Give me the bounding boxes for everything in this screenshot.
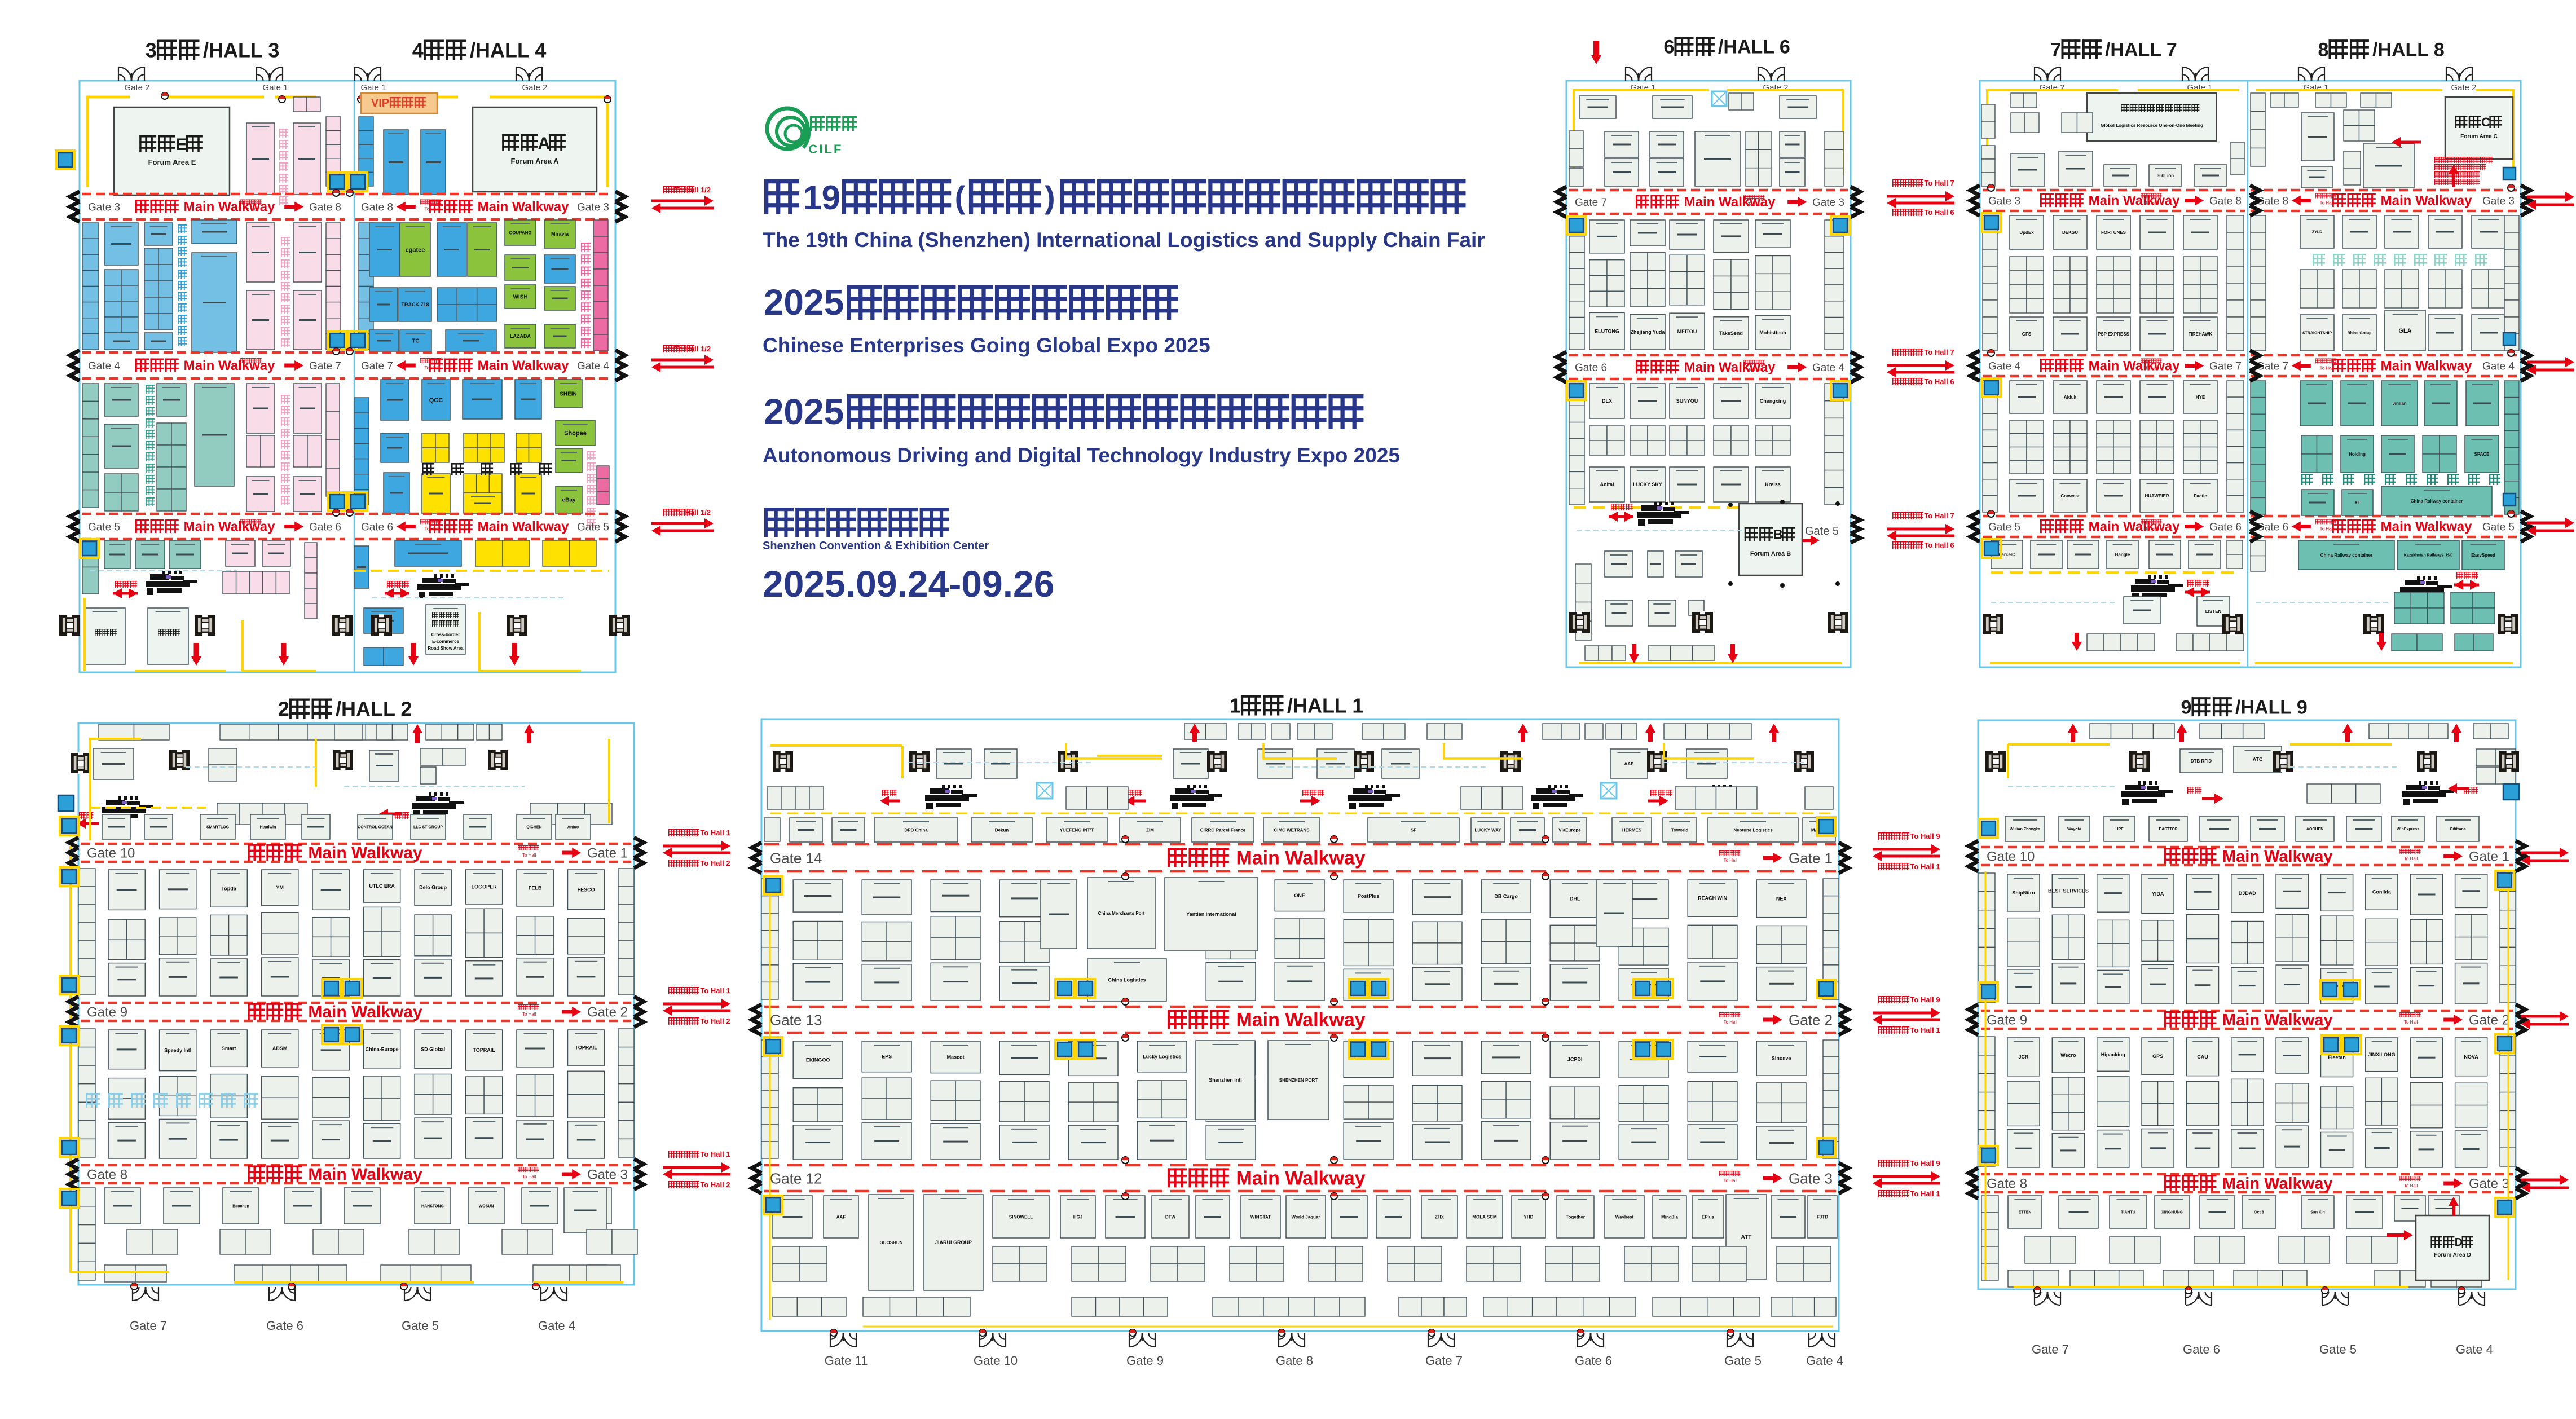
- svg-text:YHD: YHD: [1524, 1214, 1534, 1219]
- svg-text:Gate 6: Gate 6: [1575, 1354, 1612, 1368]
- svg-text:Antuo: Antuo: [567, 826, 579, 830]
- svg-text:To Hall 1: To Hall 1: [1910, 862, 1940, 871]
- svg-text:Gate 5: Gate 5: [2482, 521, 2515, 533]
- svg-text:Gate 8: Gate 8: [1987, 1176, 2027, 1192]
- svg-text:Gate 7: Gate 7: [309, 360, 341, 372]
- svg-text:WINGTAT: WINGTAT: [1250, 1214, 1271, 1219]
- svg-text:China Logistics: China Logistics: [1108, 977, 1146, 983]
- svg-text:To Hall: To Hall: [522, 853, 536, 858]
- svg-text:Gate 4: Gate 4: [2482, 360, 2515, 372]
- svg-text:QICHEN: QICHEN: [526, 826, 541, 830]
- svg-text:To Hall: To Hall: [245, 527, 259, 532]
- svg-text:Speedy Intl: Speedy Intl: [164, 1048, 191, 1054]
- svg-text:To Hall: To Hall: [425, 365, 439, 371]
- svg-text:EasySpeed: EasySpeed: [2471, 553, 2495, 558]
- svg-text:DB Cargo: DB Cargo: [1494, 893, 1518, 899]
- svg-text:Zhejiang Yuda: Zhejiang Yuda: [1631, 329, 1666, 335]
- svg-text:DJDAD: DJDAD: [2239, 891, 2257, 896]
- svg-text:Gate 6: Gate 6: [1575, 362, 1607, 374]
- svg-text:Gate 7: Gate 7: [2032, 1342, 2069, 1356]
- svg-text:Gate 5: Gate 5: [577, 521, 609, 533]
- svg-text:Gate 8: Gate 8: [2209, 195, 2242, 207]
- svg-text:Delo Group: Delo Group: [419, 885, 447, 891]
- svg-text:To Hall: To Hall: [2145, 366, 2159, 371]
- svg-text:Gate 8: Gate 8: [1276, 1354, 1313, 1368]
- svg-text:SD Global: SD Global: [421, 1047, 445, 1052]
- svg-text:LUCKY SKY: LUCKY SKY: [1633, 482, 1662, 487]
- svg-text:Forum Area E: Forum Area E: [148, 158, 196, 166]
- svg-text:Gate 5: Gate 5: [402, 1319, 439, 1333]
- svg-text:China-Europe: China-Europe: [366, 1047, 399, 1052]
- svg-text:/HALL 3: /HALL 3: [203, 38, 279, 61]
- svg-text:MEITOU: MEITOU: [1677, 329, 1697, 334]
- svg-text:Main Walkway: Main Walkway: [184, 358, 275, 373]
- svg-text:HUAWEIER: HUAWEIER: [2145, 493, 2169, 499]
- svg-text:A: A: [538, 134, 551, 153]
- svg-text:To Hall 1: To Hall 1: [700, 986, 730, 995]
- svg-text:AOCHEN: AOCHEN: [2306, 827, 2323, 831]
- svg-text:Oct 8: Oct 8: [2254, 1210, 2264, 1214]
- svg-text:NEX: NEX: [1776, 896, 1787, 902]
- svg-text:To Hall: To Hall: [2320, 527, 2334, 532]
- svg-text:Shenzhen Intl: Shenzhen Intl: [1209, 1077, 1242, 1083]
- svg-text:Gate 4: Gate 4: [577, 360, 609, 372]
- svg-text:Gate 3: Gate 3: [2482, 195, 2515, 207]
- svg-text:ShipNitro: ShipNitro: [2012, 890, 2035, 896]
- svg-text:DHL: DHL: [1570, 896, 1580, 902]
- svg-text:FESCO: FESCO: [578, 887, 595, 892]
- svg-text:LUCKY WAY: LUCKY WAY: [1474, 827, 1501, 832]
- svg-text:ETTEN: ETTEN: [2019, 1210, 2032, 1214]
- svg-text:ZIM: ZIM: [1146, 827, 1154, 832]
- svg-text:Conlida: Conlida: [2372, 889, 2392, 895]
- svg-text:To Hall 1/2: To Hall 1/2: [675, 186, 711, 194]
- svg-text:To Hall 6: To Hall 6: [1924, 541, 1954, 549]
- svg-text:Main Walkway: Main Walkway: [308, 844, 422, 862]
- svg-text:DTW: DTW: [1165, 1214, 1176, 1219]
- svg-text:Main Walkway: Main Walkway: [184, 519, 275, 535]
- svg-text:XINGHUNG: XINGHUNG: [2161, 1210, 2183, 1214]
- svg-text:To Hall: To Hall: [2145, 201, 2159, 206]
- svg-text:QCC: QCC: [429, 397, 443, 404]
- svg-text:San Xin: San Xin: [2310, 1210, 2325, 1214]
- svg-text:Wulian Zhongka: Wulian Zhongka: [2010, 827, 2040, 831]
- svg-text:To Hall: To Hall: [1724, 1178, 1738, 1183]
- svg-text:Topda: Topda: [221, 885, 236, 891]
- svg-text:Main Walkway: Main Walkway: [1236, 848, 1365, 869]
- svg-text:Baochen: Baochen: [232, 1204, 249, 1208]
- svg-text:MOLA SCM: MOLA SCM: [1472, 1214, 1497, 1219]
- svg-text:Gate 7: Gate 7: [130, 1319, 167, 1333]
- svg-text:To Hall 9: To Hall 9: [1910, 995, 1940, 1004]
- svg-text:Main Walkway: Main Walkway: [478, 358, 569, 373]
- svg-text:China Railway container: China Railway container: [2411, 499, 2463, 504]
- svg-text:XT: XT: [2354, 500, 2360, 505]
- svg-text:Main Walkway: Main Walkway: [2089, 519, 2180, 535]
- svg-text:To Hall: To Hall: [1724, 1020, 1738, 1025]
- svg-text:JCR: JCR: [2018, 1054, 2029, 1060]
- svg-text:Hangle: Hangle: [2115, 552, 2130, 557]
- svg-text:E-commerce: E-commerce: [432, 639, 460, 644]
- svg-text:SUNYOU: SUNYOU: [1676, 398, 1698, 404]
- svg-text:Wayota: Wayota: [2067, 827, 2081, 831]
- svg-text:Shenzhen Convention & Exhibiti: Shenzhen Convention & Exhibition Center: [763, 540, 989, 552]
- svg-text:Gate 2: Gate 2: [587, 1005, 628, 1020]
- svg-text:JCPDl: JCPDl: [1567, 1057, 1583, 1063]
- svg-text:Gate 2: Gate 2: [1789, 1011, 1833, 1028]
- svg-text:Gate 11: Gate 11: [825, 1354, 868, 1368]
- svg-text:TakeSend: TakeSend: [1719, 330, 1743, 336]
- svg-text:Gate 1: Gate 1: [2469, 849, 2509, 865]
- svg-text:Gate 4: Gate 4: [2456, 1342, 2493, 1356]
- svg-text:ViaEurope: ViaEurope: [1558, 827, 1581, 832]
- svg-text:To Hall 1: To Hall 1: [1910, 1189, 1940, 1198]
- svg-text:FORTUNES: FORTUNES: [2101, 230, 2126, 235]
- svg-text:Gate 9: Gate 9: [1126, 1354, 1164, 1368]
- svg-text:Gate 8: Gate 8: [309, 201, 341, 213]
- svg-text:/HALL 8: /HALL 8: [2372, 39, 2445, 60]
- svg-text:Forum Area C: Forum Area C: [2460, 134, 2498, 140]
- svg-text:Dekun: Dekun: [995, 827, 1009, 832]
- svg-text:To Hall: To Hall: [2320, 366, 2334, 371]
- svg-text:6: 6: [1664, 36, 1675, 58]
- svg-text:/HALL 4: /HALL 4: [470, 38, 546, 61]
- svg-text:To Hall 1: To Hall 1: [700, 1150, 730, 1158]
- svg-text:To Hall: To Hall: [522, 1174, 536, 1179]
- svg-text:TOPRAIL: TOPRAIL: [575, 1045, 597, 1051]
- svg-text:Autonomous Driving and Digital: Autonomous Driving and Digital Technolog…: [763, 444, 1400, 467]
- svg-text:/HALL 7: /HALL 7: [2105, 39, 2177, 60]
- svg-text:Main Walkway: Main Walkway: [2222, 1011, 2333, 1029]
- svg-text:To Hall 7: To Hall 7: [1924, 348, 1954, 356]
- svg-text:Conwest: Conwest: [2060, 493, 2080, 499]
- svg-text:Waybest: Waybest: [1615, 1214, 1634, 1219]
- svg-text:Main Walkway: Main Walkway: [2381, 359, 2472, 374]
- svg-text:YM: YM: [276, 885, 284, 891]
- svg-text:SHENZHEN PORT: SHENZHEN PORT: [1279, 1078, 1318, 1083]
- svg-text:JIARUI GROUP: JIARUI GROUP: [935, 1240, 972, 1245]
- svg-text:Gate 8: Gate 8: [87, 1167, 127, 1183]
- svg-text:COUPANG: COUPANG: [509, 230, 531, 235]
- svg-text:Gate 1: Gate 1: [360, 83, 386, 92]
- svg-text:SMARTLOG: SMARTLOG: [206, 826, 230, 830]
- svg-text:To Hall: To Hall: [2145, 527, 2159, 532]
- svg-text:Fleetan: Fleetan: [2328, 1055, 2346, 1060]
- svg-text:To Hall 6: To Hall 6: [1924, 377, 1954, 386]
- svg-text:WISH: WISH: [513, 294, 527, 301]
- svg-text:1: 1: [1230, 694, 1241, 717]
- svg-text:Gate 7: Gate 7: [1425, 1354, 1463, 1368]
- svg-text:AAE: AAE: [1624, 761, 1635, 766]
- svg-text:Gate 6: Gate 6: [2209, 521, 2242, 533]
- svg-text:Main Walkway: Main Walkway: [1236, 1010, 1365, 1031]
- svg-text:Gate 4: Gate 4: [538, 1319, 575, 1333]
- svg-text:JINXILONG: JINXILONG: [2368, 1052, 2396, 1057]
- svg-text:Toworld: Toworld: [1671, 827, 1689, 832]
- svg-text:To Hall 2: To Hall 2: [700, 1017, 730, 1025]
- svg-text:EPS: EPS: [882, 1054, 892, 1060]
- svg-text:Gate 3: Gate 3: [2469, 1176, 2509, 1192]
- svg-text:To Hall 7: To Hall 7: [1924, 179, 1954, 187]
- svg-text:EASTTOP: EASTTOP: [2159, 827, 2178, 831]
- svg-text:The 19th China (Shenzhen) Inte: The 19th China (Shenzhen) International …: [763, 228, 1485, 252]
- svg-text:To Hall: To Hall: [1748, 367, 1762, 372]
- svg-text:To Hall 2: To Hall 2: [700, 1180, 730, 1189]
- svg-text:To Hall: To Hall: [245, 207, 259, 212]
- svg-text:Main Walkway: Main Walkway: [2089, 193, 2180, 209]
- svg-text:ATT: ATT: [1741, 1235, 1752, 1241]
- svg-text:PSP EXPRESS: PSP EXPRESS: [2098, 332, 2130, 337]
- svg-text:ADSM: ADSM: [272, 1046, 288, 1051]
- svg-text:HANSTONG: HANSTONG: [421, 1204, 444, 1208]
- svg-text:8: 8: [2318, 39, 2329, 60]
- svg-text:Gate 5: Gate 5: [2319, 1342, 2357, 1356]
- svg-text:To Hall 1/2: To Hall 1/2: [675, 508, 711, 517]
- svg-text:HYE: HYE: [2196, 395, 2205, 400]
- svg-text:EPlus: EPlus: [1702, 1214, 1715, 1219]
- svg-text:Main Walkway: Main Walkway: [2089, 359, 2180, 374]
- svg-text:ATC: ATC: [2253, 757, 2263, 763]
- svg-text:CILF: CILF: [809, 142, 843, 156]
- svg-text:Gate 6: Gate 6: [309, 521, 341, 533]
- svg-text:GPS: GPS: [2152, 1054, 2163, 1059]
- svg-text:egatee: egatee: [406, 246, 425, 253]
- svg-text:Forum Area B: Forum Area B: [1750, 550, 1791, 557]
- svg-text:World Jaguar: World Jaguar: [1292, 1214, 1320, 1219]
- svg-text:Together: Together: [1566, 1214, 1585, 1219]
- svg-text:eBay: eBay: [562, 497, 576, 504]
- svg-text:FELB: FELB: [529, 885, 542, 891]
- svg-text:Gate 4: Gate 4: [1806, 1354, 1843, 1368]
- svg-text:To Hall: To Hall: [2404, 1020, 2418, 1025]
- svg-text:ONE: ONE: [1294, 893, 1305, 898]
- svg-text:TC: TC: [412, 338, 419, 345]
- svg-text:Gate 10: Gate 10: [974, 1354, 1018, 1368]
- svg-text:Main Walkway: Main Walkway: [2222, 1175, 2333, 1193]
- svg-text:HPF: HPF: [2116, 827, 2124, 831]
- svg-text:STRAIGHTSHIP: STRAIGHTSHIP: [2302, 332, 2332, 336]
- svg-text:TRACK 718: TRACK 718: [401, 302, 429, 307]
- svg-text:Gate 4: Gate 4: [1988, 360, 2020, 372]
- svg-text:REACH WIN: REACH WIN: [1698, 896, 1727, 901]
- svg-text:Gate 5: Gate 5: [88, 521, 120, 533]
- svg-text:Gate 2: Gate 2: [2469, 1013, 2509, 1028]
- svg-text:CIRRO Parcel France: CIRRO Parcel France: [1200, 827, 1246, 832]
- svg-text:To Hall: To Hall: [2320, 201, 2334, 206]
- svg-text:SHEIN: SHEIN: [560, 391, 577, 398]
- svg-text:Road Show Area: Road Show Area: [428, 646, 464, 651]
- svg-text:360Lion: 360Lion: [2157, 173, 2174, 178]
- svg-text:Yantian International: Yantian International: [1186, 911, 1236, 917]
- svg-text:Gate 3: Gate 3: [1988, 195, 2020, 207]
- svg-text:E: E: [175, 135, 187, 154]
- svg-text:Forum Area A: Forum Area A: [511, 157, 560, 165]
- svg-text:Lucky Logistics: Lucky Logistics: [1143, 1054, 1181, 1060]
- svg-text:Main Walkway: Main Walkway: [2381, 193, 2472, 209]
- svg-text:Gate 1: Gate 1: [587, 846, 628, 861]
- svg-text:TIANTU: TIANTU: [2121, 1210, 2135, 1214]
- svg-text:Chinese Enterprises Going Glob: Chinese Enterprises Going Global Expo 20…: [763, 334, 1210, 357]
- svg-text:SINOWELL: SINOWELL: [1009, 1214, 1033, 1219]
- svg-text:AAF: AAF: [836, 1214, 846, 1219]
- svg-text:Gate 6: Gate 6: [2183, 1342, 2220, 1356]
- svg-text:YUEFENG INT'T: YUEFENG INT'T: [1060, 827, 1094, 832]
- svg-text:Gate 14: Gate 14: [770, 849, 822, 866]
- svg-text:Gate 9: Gate 9: [87, 1005, 127, 1020]
- svg-text:CIMC WETRANS: CIMC WETRANS: [1274, 827, 1310, 832]
- svg-text:Gate 7: Gate 7: [361, 360, 393, 372]
- svg-text:3: 3: [146, 38, 157, 61]
- svg-text:To Hall 7: To Hall 7: [1924, 512, 1954, 520]
- svg-text:Shopee: Shopee: [564, 430, 587, 437]
- svg-text:Gate 9: Gate 9: [1987, 1013, 2027, 1028]
- svg-text:Sinosve: Sinosve: [1772, 1056, 1791, 1061]
- svg-text:Cross-border: Cross-border: [431, 632, 460, 637]
- svg-text:Pactic: Pactic: [2194, 493, 2207, 499]
- svg-text:MingJia: MingJia: [1661, 1214, 1678, 1219]
- svg-text:Wecro: Wecro: [2060, 1052, 2076, 1058]
- svg-text:To Hall: To Hall: [425, 527, 439, 532]
- svg-text:Main Walkway: Main Walkway: [1236, 1168, 1365, 1189]
- svg-text:2025: 2025: [764, 391, 844, 432]
- svg-text:China Railway container: China Railway container: [2320, 553, 2372, 558]
- svg-text:To Hall 6: To Hall 6: [1924, 208, 1954, 217]
- svg-text:LOGOPER: LOGOPER: [472, 884, 497, 890]
- svg-text:2025: 2025: [764, 282, 844, 323]
- svg-text:D: D: [2455, 1236, 2463, 1249]
- svg-text:NOVA: NOVA: [2464, 1054, 2478, 1060]
- svg-text:Main Walkway: Main Walkway: [184, 200, 275, 215]
- svg-text:Gate 3: Gate 3: [587, 1167, 628, 1183]
- svg-text:To Hall: To Hall: [245, 365, 259, 371]
- svg-text:Cititrans: Cititrans: [2450, 827, 2466, 831]
- svg-text:Gate 5: Gate 5: [1805, 525, 1839, 537]
- svg-text:DpdEx: DpdEx: [2019, 230, 2034, 235]
- svg-text:/HALL 1: /HALL 1: [1287, 694, 1363, 717]
- svg-text:Main Walkway: Main Walkway: [308, 1003, 422, 1021]
- svg-text:WOSUN: WOSUN: [479, 1204, 494, 1208]
- svg-text:Gate 1: Gate 1: [262, 83, 288, 92]
- svg-text:To Hall: To Hall: [425, 207, 439, 212]
- svg-text:Gate 3: Gate 3: [577, 201, 609, 213]
- svg-text:China Merchants Port: China Merchants Port: [1098, 911, 1145, 916]
- svg-text:Gate 10: Gate 10: [1987, 849, 2035, 865]
- svg-text:To Hall: To Hall: [2404, 1183, 2418, 1188]
- svg-text:GUOSHUN: GUOSHUN: [880, 1240, 903, 1245]
- svg-text:To Hall 2: To Hall 2: [700, 859, 730, 867]
- svg-text:Gate 6: Gate 6: [361, 521, 393, 533]
- svg-text:Gate 1: Gate 1: [1789, 849, 1833, 866]
- svg-text:2025.09.24-09.26: 2025.09.24-09.26: [763, 563, 1054, 605]
- svg-text:Gate 8: Gate 8: [361, 201, 393, 213]
- svg-text:Gate 4: Gate 4: [88, 360, 120, 372]
- svg-text:HERMES: HERMES: [1622, 827, 1642, 832]
- svg-text:Global Logistics Resource One-: Global Logistics Resource One-on-One Mee…: [2101, 123, 2203, 128]
- svg-text:Aiduk: Aiduk: [2064, 395, 2077, 400]
- svg-text:DEKSU: DEKSU: [2062, 230, 2078, 235]
- svg-text:9: 9: [2181, 697, 2192, 718]
- svg-text:BEST SERVICES: BEST SERVICES: [2048, 888, 2089, 894]
- svg-text:Gate 6: Gate 6: [266, 1319, 303, 1333]
- svg-text:LISTEN: LISTEN: [2205, 609, 2222, 614]
- svg-text:ZHX: ZHX: [1435, 1214, 1445, 1219]
- svg-text:FIREHAWK: FIREHAWK: [2189, 332, 2213, 337]
- svg-text:TOPRAIL: TOPRAIL: [473, 1047, 495, 1053]
- svg-text:19: 19: [803, 179, 840, 217]
- svg-text:Main Walkway: Main Walkway: [478, 519, 569, 535]
- svg-text:Gate 3: Gate 3: [1812, 197, 1844, 209]
- svg-text:To Hall: To Hall: [1748, 202, 1762, 207]
- svg-text:Forum Area D: Forum Area D: [2434, 1252, 2471, 1258]
- svg-text:Main Walkway: Main Walkway: [2381, 519, 2472, 535]
- svg-text:CAU: CAU: [2197, 1054, 2208, 1060]
- svg-text:Chengxing: Chengxing: [1760, 398, 1786, 404]
- svg-text:Gate 3: Gate 3: [1789, 1170, 1833, 1187]
- svg-text:Gate 10: Gate 10: [87, 846, 135, 861]
- svg-text:To Hall: To Hall: [1724, 858, 1738, 863]
- svg-text:Jinlian: Jinlian: [2392, 401, 2406, 406]
- svg-text:Headwin: Headwin: [260, 826, 276, 830]
- svg-text:To Hall 1/2: To Hall 1/2: [675, 345, 711, 353]
- svg-text:B: B: [1773, 527, 1783, 543]
- svg-text:EKINGOO: EKINGOO: [806, 1057, 830, 1063]
- svg-text:Smart: Smart: [222, 1046, 236, 1051]
- svg-text:To Hall 9: To Hall 9: [1910, 832, 1940, 840]
- svg-text:Gate 4: Gate 4: [1812, 362, 1844, 374]
- svg-text:Gate 7: Gate 7: [1575, 197, 1607, 209]
- svg-text:YIDA: YIDA: [2152, 891, 2164, 897]
- svg-text:PostPlus: PostPlus: [1358, 893, 1380, 899]
- svg-text:To Hall 1: To Hall 1: [700, 829, 730, 837]
- svg-text:C: C: [2481, 115, 2490, 129]
- svg-text:Mascot: Mascot: [947, 1054, 965, 1060]
- svg-text:Main Walkway: Main Walkway: [478, 200, 569, 215]
- svg-text:Kazakhstan Railways JSC: Kazakhstan Railways JSC: [2404, 554, 2452, 558]
- svg-text:ZYLD: ZYLD: [2312, 230, 2322, 234]
- svg-text:Gate 2: Gate 2: [124, 83, 149, 92]
- svg-text:Neptune Logistics: Neptune Logistics: [1733, 827, 1773, 832]
- svg-text:(: (: [955, 179, 966, 215]
- svg-text:LLC ST GROUP: LLC ST GROUP: [413, 826, 443, 830]
- svg-text:CONTROL OCEAN: CONTROL OCEAN: [358, 826, 393, 830]
- svg-text:GFS: GFS: [2022, 332, 2032, 337]
- svg-text:Gate 12: Gate 12: [770, 1170, 822, 1187]
- svg-text:To Hall: To Hall: [522, 1012, 536, 1017]
- svg-text:/HALL 2: /HALL 2: [336, 697, 412, 720]
- svg-text:4: 4: [412, 38, 424, 61]
- svg-text:Gate 5: Gate 5: [1724, 1354, 1762, 1368]
- svg-text:Gate 5: Gate 5: [1988, 521, 2020, 533]
- svg-text:2: 2: [278, 697, 289, 720]
- svg-text:/HALL 9: /HALL 9: [2235, 697, 2308, 718]
- svg-text:WinExpress: WinExpress: [2397, 827, 2419, 831]
- svg-text:Rhino Group: Rhino Group: [2348, 332, 2372, 336]
- svg-text:To Hall: To Hall: [2404, 856, 2418, 861]
- svg-text:Main Walkway: Main Walkway: [2222, 848, 2333, 866]
- svg-text:To Hall 1: To Hall 1: [1910, 1026, 1940, 1034]
- svg-text:Gate 7: Gate 7: [2209, 360, 2242, 372]
- svg-text:Main Walkway: Main Walkway: [308, 1165, 422, 1184]
- svg-text:Gate 2: Gate 2: [2451, 83, 2476, 92]
- svg-text:FJTD: FJTD: [1817, 1214, 1828, 1219]
- svg-text:DLX: DLX: [1602, 398, 1612, 404]
- svg-text:): ): [1045, 179, 1055, 215]
- svg-text:Gate 13: Gate 13: [770, 1011, 822, 1028]
- svg-text:Holding: Holding: [2349, 452, 2366, 457]
- svg-text:ELUTONG: ELUTONG: [1595, 328, 1619, 334]
- svg-text:DTB RFID: DTB RFID: [2191, 759, 2212, 764]
- svg-text:7: 7: [2051, 39, 2062, 60]
